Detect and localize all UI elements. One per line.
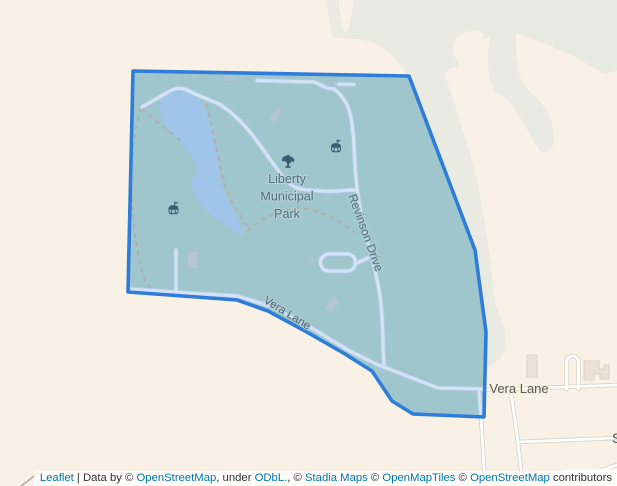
svg-text:Liberty: Liberty	[268, 172, 307, 186]
svg-text:Municipal: Municipal	[260, 190, 313, 204]
svg-text:S: S	[612, 431, 617, 446]
svg-text:Park: Park	[274, 207, 301, 221]
svg-text:Vera Lane: Vera Lane	[489, 381, 548, 396]
